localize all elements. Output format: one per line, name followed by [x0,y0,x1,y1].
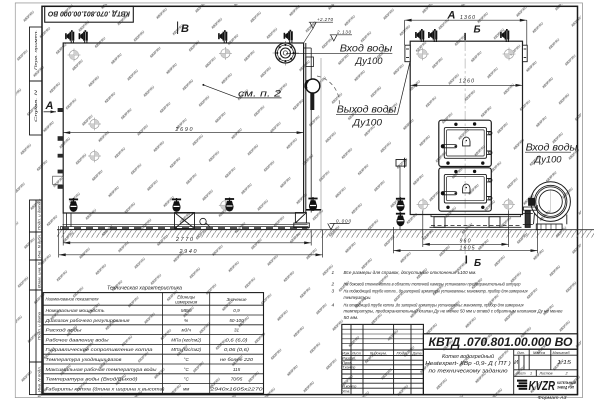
svg-text:2940х1605х2270: 2940х1605х2270 [209,386,263,391]
svg-text:Лист: Лист [351,351,361,355]
svg-text:Подп. и дата: Подп. и дата [37,202,41,230]
svg-text:1360: 1360 [460,15,475,21]
svg-text:Лит.: Лит. [516,351,525,355]
svg-text:960: 960 [460,239,471,245]
svg-text:Значение: Значение [227,297,247,302]
svg-text:31: 31 [234,328,240,333]
svg-text:Формат А3: Формат А3 [538,395,568,400]
svg-text:Техническая характеристика: Техническая характеристика [107,286,182,292]
svg-text:Диапазон рабочего регулировани: Диапазон рабочего регулирования [44,318,130,323]
svg-text:+2.270: +2.270 [317,17,333,22]
svg-text:Пров.: Пров. [342,361,352,365]
svg-text:1605: 1605 [460,245,475,251]
svg-text:На подводящей трубе котла ,: На подводящей трубе котла , до запорной … [344,288,528,294]
svg-text:Единицы: Единицы [177,294,196,299]
svg-text:КВТД .070.801.00.000 ВО: КВТД .070.801.00.000 ВО [48,9,130,18]
svg-text:МПа (кгс/см2): МПа (кгс/см2) [171,337,201,342]
svg-text:А: А [447,10,456,22]
svg-text:4: 4 [332,302,335,307]
svg-text:0,06 (0,6): 0,06 (0,6) [224,347,250,352]
svg-text:Выход воды: Выход воды [337,105,397,116]
svg-text:Т.контр: Т.контр [342,366,355,370]
svg-text:Справ. N: Справ. N [33,90,38,122]
svg-text:°С: °С [184,377,190,382]
svg-text:1260: 1260 [459,79,474,85]
svg-text:не более 220: не более 220 [220,357,254,362]
svg-text:КВТД .070.801.00.000 ВО: КВТД .070.801.00.000 ВО [429,335,574,349]
svg-text:2.130: 2.130 [336,30,351,35]
svg-text:Ду100: Ду100 [534,153,563,164]
svg-text:Масштаб: Масштаб [553,351,571,355]
svg-text:На боковой стенке котла в обла: На боковой стенке котла в области топочн… [344,280,521,286]
svg-text:Номинальная мощность: Номинальная мощность [46,308,106,313]
svg-text:Утв.: Утв. [342,390,350,394]
svg-text:Инв. N дубл.: Инв. N дубл. [37,234,41,258]
svg-text:1: 1 [530,372,532,376]
svg-text:Гидравлическое сопротивление к: Гидравлическое сопротивление котла [46,347,154,352]
svg-text:Котел водогрейный: Котел водогрейный [442,353,494,360]
svg-text:N докум.: N докум. [370,351,387,355]
svg-text:Ду100: Ду100 [352,117,383,128]
svg-text:Вход воды: Вход воды [526,142,578,153]
svg-text:Разраб.: Разраб. [342,356,356,360]
svg-text:2: 2 [331,281,335,286]
svg-text:Вход воды: Вход воды [340,44,393,55]
svg-text:°С: °С [184,357,190,362]
svg-text:Подп.: Подп. [397,351,408,355]
svg-text:Б: Б [474,258,481,269]
svg-text:Heatexpert- КВр -0,9- Д ( ПТ ): Heatexpert- КВр -0,9- Д ( ПТ ) [425,361,511,367]
svg-text:0,6 (6,0): 0,6 (6,0) [226,337,249,342]
svg-text:И: И [514,360,518,366]
svg-text:Дата: Дата [412,351,422,355]
svg-text:МПа (кгс/см2): МПа (кгс/см2) [171,347,201,352]
svg-text:1:15: 1:15 [557,360,572,366]
svg-text:Подп. и дата: Подп. и дата [37,312,41,340]
svg-text:Габариты котла (длина х ширина: Габариты котла (длина х ширина х высота) [46,386,166,391]
svg-text:50-100: 50-100 [229,318,244,323]
svg-text:Максимальная рабочая температу: Максимальная рабочая температура воды [46,367,158,372]
svg-text:Температура воды (Вход/Выход): Температура воды (Вход/Выход) [46,377,139,382]
svg-text:Перв. примен.: Перв. примен. [33,30,38,70]
svg-text:Расход воды: Расход воды [46,328,83,333]
svg-text:мм: мм [183,386,190,391]
svg-text:Н.контр: Н.контр [342,384,356,388]
svg-text:температуры, предохранительный: температуры, предохранительный клапан Ду… [344,308,563,314]
svg-text:Б: Б [473,25,480,36]
svg-text:50 мм.: 50 мм. [344,315,359,320]
svg-text:На отводящей трубе котла ,до з: На отводящей трубе котла ,до запорной ар… [344,301,524,307]
svg-text:м3/ч: м3/ч [182,328,192,333]
svg-text:2: 2 [565,372,568,376]
svg-text:измерения: измерения [175,300,198,305]
svg-text:Температура уходящих газов: Температура уходящих газов [46,357,123,362]
svg-text:70/95: 70/95 [231,377,243,382]
svg-text:Рабочее давление воды: Рабочее давление воды [46,337,110,342]
svg-text:1: 1 [332,270,335,275]
svg-text:Инв. N подл.: Инв. N подл. [37,366,41,392]
svg-text:0.000: 0.000 [336,218,351,223]
svg-text:Взам. инв. N: Взам. инв. N [37,262,41,288]
svg-text:115: 115 [233,367,241,372]
svg-text:°С: °С [184,367,190,372]
svg-text:Листов: Листов [539,372,553,376]
svg-text:Лист: Лист [516,372,526,376]
svg-text:Ду100: Ду100 [355,55,384,66]
svg-text:температуры.: температуры. [344,295,372,300]
svg-text:0,9: 0,9 [233,308,240,313]
svg-text:ЗАВОД РЭП: ЗАВОД РЭП [557,386,574,390]
svg-text:Масса: Масса [533,351,545,355]
svg-text:%: % [184,318,188,323]
svg-text:Изм.: Изм. [342,351,350,355]
svg-text:3: 3 [332,289,335,294]
svg-text:МВт: МВт [181,308,192,313]
svg-text:В: В [181,23,189,35]
svg-text:по техническому заданию: по техническому заданию [429,369,508,375]
svg-text:Наименование показателя: Наименование показателя [46,297,99,302]
svg-text:А: А [45,100,54,112]
svg-text:КОТЕЛЬНЫЙ: КОТЕЛЬНЫЙ [557,381,576,385]
svg-text:Все размеры для справок, допус: Все размеры для справок, допустимые откл… [344,270,477,275]
svg-text:KVZR: KVZR [529,379,556,393]
